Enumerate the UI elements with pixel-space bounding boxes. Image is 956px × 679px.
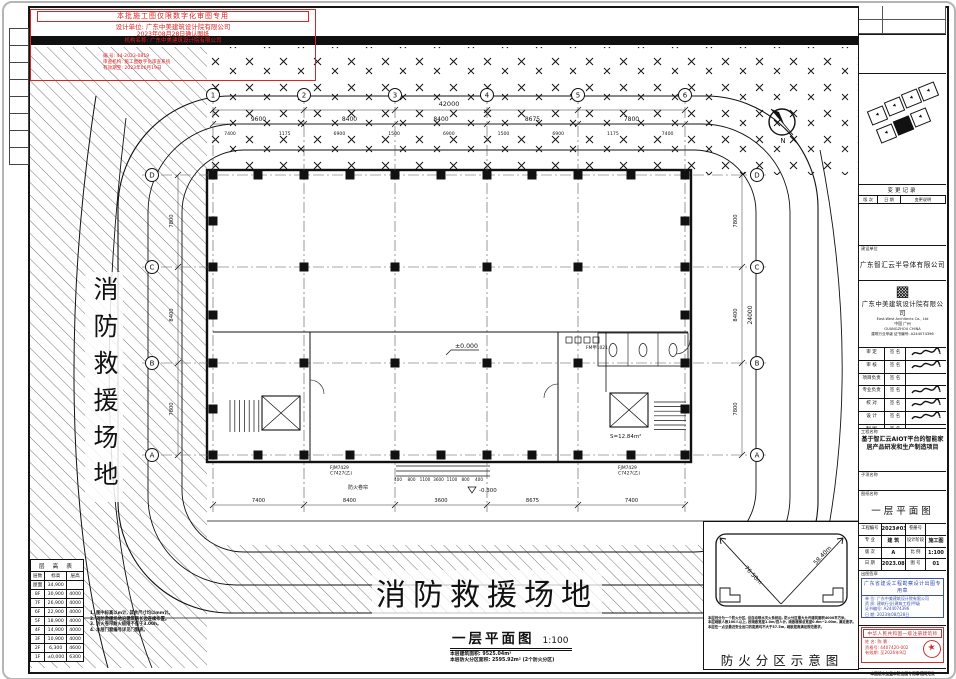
column [528, 171, 537, 180]
window-tag: FJM7429 [330, 465, 349, 471]
column [627, 451, 636, 460]
review-stamp-line: 本批施工图仅限数字化审图专用 [37, 11, 309, 22]
column [437, 451, 446, 460]
revision-header: 日 期 [878, 196, 901, 203]
dim-bottom: 7400 [625, 498, 638, 504]
key-plan-building: ◂ [867, 105, 888, 125]
field-label: 版 次 [859, 548, 882, 559]
dim-right: 8400 [733, 308, 739, 321]
client-name: 广东智汇云半导体有限公司 [859, 259, 946, 269]
floor-table-cell: 4F [31, 626, 45, 635]
dim-right: 7800 [733, 402, 739, 415]
fire-compartment-diagram: 76.50m 58.40m 本层划分为一个防火分区, 设自动喷水灭火系统后, 防… [703, 521, 861, 670]
issue-stamp-title: 广东省建设工程勘察设计出图专用章 [862, 579, 943, 596]
dim-bottom: 8675 [526, 498, 539, 504]
field-row: 工程编号2023#031卷册号 [859, 524, 946, 536]
drawing-name: 一层平面图 [859, 503, 946, 517]
building-outline [207, 170, 691, 462]
dim-right: 7800 [733, 214, 739, 227]
window-tag: C7427(乙) [330, 470, 352, 477]
dim-top: 7800 [624, 116, 639, 123]
note-line: 4. 本层门窗编号详见门窗表。 [90, 628, 202, 634]
dim-bottom: 8400 [343, 498, 356, 504]
floor-table-row: 层数标高层高 [31, 572, 84, 581]
role-row: 校 对签 名 [859, 399, 946, 412]
binding-strip [9, 28, 29, 165]
dim-entrance: 400 [475, 477, 483, 482]
review-stamp-small-line: 有效期至: 2023年06月19日 [103, 66, 170, 72]
fire-diagram-notes: 本层划分为一个防火分区, 设自动喷水灭火系统后, 防火分区最大允许建筑面积400… [708, 616, 856, 629]
floor-table-title: 层 高 表 [30, 559, 84, 571]
role-label: 审 定 [859, 348, 885, 360]
issue-stamp-section: 出图签章 广东省建设工程勘察设计出图专用章 单 位: 广东中美建筑设计院有限公司… [859, 571, 946, 626]
column [681, 451, 690, 460]
column [391, 451, 400, 460]
binding-cell [9, 131, 29, 148]
key-plan: ◂ ◂ ◂ ◂ ◂ ◂ [859, 74, 946, 185]
grid-bubble-label: C [755, 263, 760, 271]
floor-table-row: 2F6,3004600 [31, 644, 84, 653]
floor-table-cell: 8F [31, 590, 45, 599]
client-section: 建设单位 广东智汇云半导体有限公司 [859, 246, 946, 281]
field-label: 工程编号 [859, 524, 882, 535]
column [209, 217, 218, 226]
key-plan-building: ◂ [910, 107, 931, 127]
floor-table-cell: 4000 [67, 590, 84, 599]
stair-icon-left [720, 588, 740, 602]
floor-table-cell: 2F [31, 644, 45, 653]
drawing-sheet: 123456DCBADCBA96007400840084008400360086… [0, 0, 956, 679]
role-label: 项目负责 [859, 374, 885, 385]
dim-total-top: 42000 [439, 100, 460, 108]
roles-table: 审 定签 名审 核签 名项目负责签 名专业负责签 名校 对签 名设 计签 名制 … [859, 348, 946, 429]
firm-cert: 建筑行业甲级 证书编号: A244074396 [859, 332, 946, 337]
column [300, 451, 309, 460]
grid-bubble-label: B [755, 359, 760, 367]
dim-entrance: 3600 [433, 477, 444, 482]
fire-diagram-diagonal [781, 538, 843, 604]
role-label: 设 计 [859, 412, 885, 424]
dim-entrance: 800 [462, 477, 470, 482]
titleblock-footnote: 本图纸未加盖本院出图专用章视同无效 [859, 669, 946, 679]
review-stamp-line: 机构名称: 广东中美建筑设计院有限公司 [31, 38, 315, 45]
field-row: 版 次A比 例1:100 [859, 548, 946, 560]
column [391, 263, 400, 272]
field-label: 日 期 [859, 559, 882, 570]
binding-cell [9, 28, 29, 46]
role-sign-label: 签 名 [885, 361, 906, 373]
floor-table-cell: ±0,000 [45, 653, 67, 662]
floor-table-cell: 层高 [67, 572, 84, 581]
column [391, 359, 400, 368]
role-signature [906, 386, 946, 398]
fire-diagonal-label-right: 58.40m [812, 545, 833, 567]
window-tag: FJM7429 [618, 465, 637, 471]
fire-diagonal-label-left: 76.50m [743, 565, 764, 587]
role-signature [906, 374, 946, 385]
project-name: 基于智汇云AIOT平台的智能家居产品研发和生产制造项目 [859, 435, 946, 453]
dim-bottom: 7400 [252, 498, 265, 504]
plan-scale: 1:100 [543, 636, 569, 646]
dim-top-inner: 7400 [224, 131, 236, 137]
field-value: 1:100 [926, 548, 946, 559]
field-label: 卷册号 [906, 524, 926, 535]
fire-shutter-tag: 防火卷帘 [348, 484, 368, 491]
registration-stamp-title: 中华人民共和国一级注册建筑师 [863, 629, 942, 638]
floor-table-cell: 30,900 [45, 590, 67, 599]
drawing-name-section: 图纸名称 一层平面图 [859, 491, 946, 524]
field-label: 比 例 [906, 548, 926, 559]
column [483, 451, 492, 460]
dim-entrance: 1100 [447, 477, 458, 482]
floor-table-cell: 26,900 [45, 599, 67, 608]
role-signature [906, 399, 946, 411]
floor-table-cell: 6F [31, 608, 45, 617]
grid-bubble-label: 6 [683, 91, 688, 99]
column [483, 359, 492, 368]
top-cell [859, 6, 883, 19]
dim-top-inner: 1500 [388, 131, 400, 137]
stair-icon-right [823, 588, 843, 602]
column [254, 451, 263, 460]
floor-table-cell: 4000 [67, 599, 84, 608]
floor-table-cell: 1F [31, 653, 45, 662]
field-row: 专 业建 筑设计阶段施工图 [859, 536, 946, 548]
field-value: 2023#031 [882, 524, 906, 535]
dim-top-inner: 1175 [279, 131, 291, 137]
grid-bubble-label: 3 [393, 91, 397, 99]
field-label: 图 号 [906, 559, 926, 570]
field-value: 2023.08 [882, 559, 906, 570]
column [681, 311, 690, 320]
firm-logo: ▩ [859, 283, 946, 299]
role-row: 项目负责签 名 [859, 374, 946, 386]
floor-table-row: 屋面34,900 [31, 581, 84, 590]
column [437, 171, 446, 180]
window-tag: C7427(乙) [618, 470, 640, 477]
binding-cell [9, 97, 29, 114]
dim-top-inner: 1500 [498, 131, 510, 137]
level-center-text: ±0.000 [455, 343, 478, 350]
grid-bubble-label: A [755, 451, 760, 459]
floor-table-cell [67, 581, 84, 590]
role-sign-label: 签 名 [885, 412, 906, 424]
column [681, 405, 690, 414]
dim-top-inner: 1175 [607, 131, 619, 137]
column [209, 171, 218, 180]
dim-top: 8400 [342, 116, 357, 123]
grid-bubble-label: 4 [485, 91, 490, 99]
role-signature [906, 348, 946, 360]
outdoor-level-marker [468, 487, 476, 493]
floor-height-table: 层 高 表 层数标高层高屋面34,9008F30,90040007F26,900… [30, 559, 84, 662]
column [681, 217, 690, 226]
issue-stamp-label: 出图签章 [859, 571, 946, 577]
dim-top-inner: 6900 [334, 131, 346, 137]
fire-diagram-canvas: 76.50m 58.40m [704, 522, 860, 614]
issue-stamp-line: 日 期: 2023年08月28日 [862, 612, 943, 617]
floor-table-cell: 标高 [45, 572, 67, 581]
floor-table-cell: 6,300 [45, 644, 67, 653]
dim-entrance: 800 [408, 477, 416, 482]
plan-title: 一层平面图 [452, 627, 535, 647]
floor-table-cell: 4000 [67, 626, 84, 635]
field-label: 专 业 [859, 536, 882, 547]
role-label: 审 核 [859, 361, 885, 373]
floor-table-cell: 4000 [67, 635, 84, 644]
revision-title: 变更记录 [859, 185, 946, 196]
titleblock-top-cells [859, 6, 946, 35]
dim-entrance: 1100 [420, 477, 431, 482]
grid-bubble-label: 1 [211, 91, 215, 99]
floor-table-row: 4F14,9004000 [31, 626, 84, 635]
column [254, 171, 263, 180]
dim-entrance: 400 [394, 477, 402, 482]
floor-table-row: 6F22,9004000 [31, 608, 84, 617]
column [209, 359, 218, 368]
column [574, 451, 583, 460]
role-sign-label: 签 名 [885, 386, 906, 398]
role-sign-label: 签 名 [885, 374, 906, 385]
binding-cell [9, 63, 29, 80]
titleblock-spacer [859, 35, 946, 74]
review-stamp-smalls: 编 号: 44-2023-0819 审查机构: 施工图数字化审查系统 有效期至:… [103, 54, 170, 71]
column [209, 405, 218, 414]
dim-left: 7800 [169, 214, 175, 227]
dim-left: 8400 [169, 308, 175, 321]
north-label: N [780, 137, 785, 145]
subitem-section: 子项名称 [859, 472, 946, 491]
column [346, 451, 355, 460]
floor-table-row: 8F30,9004000 [31, 590, 84, 599]
binding-cell [9, 148, 29, 165]
firm-name: 广东中美建筑设计院有限公司 [859, 299, 946, 317]
floor-table-row: 7F26,9004000 [31, 599, 84, 608]
grid-bubble-label: A [150, 451, 155, 459]
column [483, 171, 492, 180]
design-firm-section: ▩ 广东中美建筑设计院有限公司 East-West Architects Co.… [859, 281, 946, 348]
registration-stamp-section: 中华人民共和国一级注册建筑师 姓 名: 陈 寰 资格号: 4407420-002… [859, 626, 946, 669]
grid-bubble-label: 2 [302, 91, 306, 99]
level-outdoor-text: -0.300 [479, 488, 497, 494]
plan-title-block: 一层平面图 1:100 本层建筑面积: 9525.04m² 本层防火分区面积: … [450, 627, 572, 664]
floor-table-cell: 5F [31, 617, 45, 626]
fire-rescue-area-bottom-label: 消防救援场地 [372, 570, 602, 614]
floor-table-cell: 18,900 [45, 617, 67, 626]
role-row: 审 定签 名 [859, 348, 946, 361]
column [300, 171, 309, 180]
revision-header: 版 次 [859, 196, 878, 203]
dim-total-right: 24000 [747, 305, 754, 324]
floor-table-row: 3F10,9004000 [31, 635, 84, 644]
fire-diagram-title: 防火分区示意图 [704, 650, 860, 669]
field-label: 设计阶段 [906, 536, 926, 547]
binding-cell [9, 46, 29, 63]
grid-bubble-label: C [150, 263, 155, 271]
footnote-text: 本图纸未加盖本院出图专用章视同无效 [859, 669, 946, 679]
review-stamp-line: 2023年08月28日确认图纸 [31, 31, 315, 38]
role-signature [906, 361, 946, 373]
floor-table-row: 1F±0,0006300 [31, 653, 84, 662]
floor-table-cell: 10,900 [45, 635, 67, 644]
field-value: 01 [926, 559, 946, 570]
dim-bottom: 3600 [434, 498, 447, 504]
floor-table-cell: 6300 [67, 653, 84, 662]
floor-table-cell: 3F [31, 635, 45, 644]
field-value: A [882, 548, 906, 559]
fire-door-tag: FM甲1021 [586, 345, 608, 351]
column [681, 263, 690, 272]
dim-top-inner: 7400 [662, 131, 674, 137]
dim-top-inner: 6900 [443, 131, 455, 137]
field-value [926, 524, 946, 535]
column [483, 263, 492, 272]
column [681, 171, 690, 180]
revision-header: 变更说明 [901, 196, 946, 203]
subitem-label: 子项名称 [859, 472, 946, 478]
column [346, 171, 355, 180]
role-row: 设 计签 名 [859, 412, 946, 425]
floor-table-cell: 14,900 [45, 626, 67, 635]
field-value: 施工图 [926, 536, 946, 547]
floor-table-cell: 屋面 [31, 581, 45, 590]
top-cell [883, 20, 946, 33]
floor-table-cell: 4000 [67, 608, 84, 617]
column [209, 451, 218, 460]
grid-bubble-label: D [754, 171, 759, 179]
role-label: 校 对 [859, 399, 885, 411]
role-row: 审 核签 名 [859, 361, 946, 374]
dim-top: 9600 [251, 116, 266, 123]
floor-table-row: 5F18,9004000 [31, 617, 84, 626]
fire-rescue-area-vertical-label: 消防救援场地 [85, 272, 123, 502]
fields-grid: 工程编号2023#031卷册号专 业建 筑设计阶段施工图版 次A比 例1:100… [859, 524, 946, 571]
drawing-label: 图纸名称 [859, 491, 946, 497]
column [300, 263, 309, 272]
role-signature [906, 412, 946, 424]
column [574, 359, 583, 368]
role-sign-label: 签 名 [885, 348, 906, 360]
binding-cell [9, 114, 29, 131]
top-cell [859, 20, 883, 33]
dim-top: 8400 [433, 116, 448, 123]
field-value: 建 筑 [882, 536, 906, 547]
column [627, 171, 636, 180]
binding-cell [9, 80, 29, 97]
review-stamp-small-line: 审查机构: 施工图数字化审查系统 [103, 60, 170, 66]
field-row: 日 期2023.08图 号01 [859, 559, 946, 570]
column [574, 263, 583, 272]
floor-table-cell: 4600 [67, 644, 84, 653]
floor-table-cell: 22,900 [45, 608, 67, 617]
revision-table: 变更记录 版 次 日 期 变更说明 [859, 185, 946, 246]
grid-bubble-label: D [149, 171, 154, 179]
project-name-section: 工程名称 基于智汇云AIOT平台的智能家居产品研发和生产制造项目 [859, 429, 946, 472]
issue-stamp: 广东省建设工程勘察设计出图专用章 单 位: 广东中美建筑设计院有限公司 资 质:… [861, 578, 944, 619]
floor-table-cell: 4000 [67, 617, 84, 626]
dim-top: 8675 [525, 116, 540, 123]
column [391, 171, 400, 180]
floor-table-cell: 34,900 [45, 581, 67, 590]
fire-note-line: 本层任一点至最近安全出口的距离均不大于37.5m, 疏散距离满足规范要求。 [708, 625, 856, 629]
firm-city-en: GUANGZHOU CHINA [859, 327, 946, 331]
dim-left: 7800 [169, 402, 175, 415]
general-notes: 1. 图中标高以m计, 其余尺寸均以mm计。2. 消防救援场地沿建筑两长边连续布… [90, 611, 202, 633]
role-sign-label: 签 名 [885, 399, 906, 411]
top-cell [883, 6, 946, 19]
grid-bubble-label: 5 [576, 91, 580, 99]
registration-stamp: 中华人民共和国一级注册建筑师 姓 名: 陈 寰 资格号: 4407420-002… [861, 627, 944, 663]
review-stamp-line: 设计单位: 广东中美建筑设计院有限公司 [31, 23, 315, 31]
role-row: 专业负责签 名 [859, 386, 946, 399]
title-block: ◂ ◂ ◂ ◂ ◂ ◂ 变更记录 版 次 日 期 变更说明 建设单位 广东智汇云… [858, 6, 946, 670]
room-area-tag: S=12.84m² [610, 433, 641, 440]
column [574, 171, 583, 180]
column [528, 451, 537, 460]
grid-bubble-label: B [150, 359, 155, 367]
dim-top-inner: 6900 [552, 131, 564, 137]
floor-table-cell: 7F [31, 599, 45, 608]
review-stamp: 本批施工图仅限数字化审图专用 设计单位: 广东中美建筑设计院有限公司 2023年… [30, 9, 316, 81]
client-label: 建设单位 [859, 246, 946, 252]
floor-table-cell: 层数 [31, 572, 45, 581]
plan-area-line: 本层防火分区面积: 2595.92m² (2个防火分区) [450, 658, 572, 664]
column [209, 263, 218, 272]
column [209, 311, 218, 320]
role-label: 专业负责 [859, 386, 885, 398]
column [300, 359, 309, 368]
